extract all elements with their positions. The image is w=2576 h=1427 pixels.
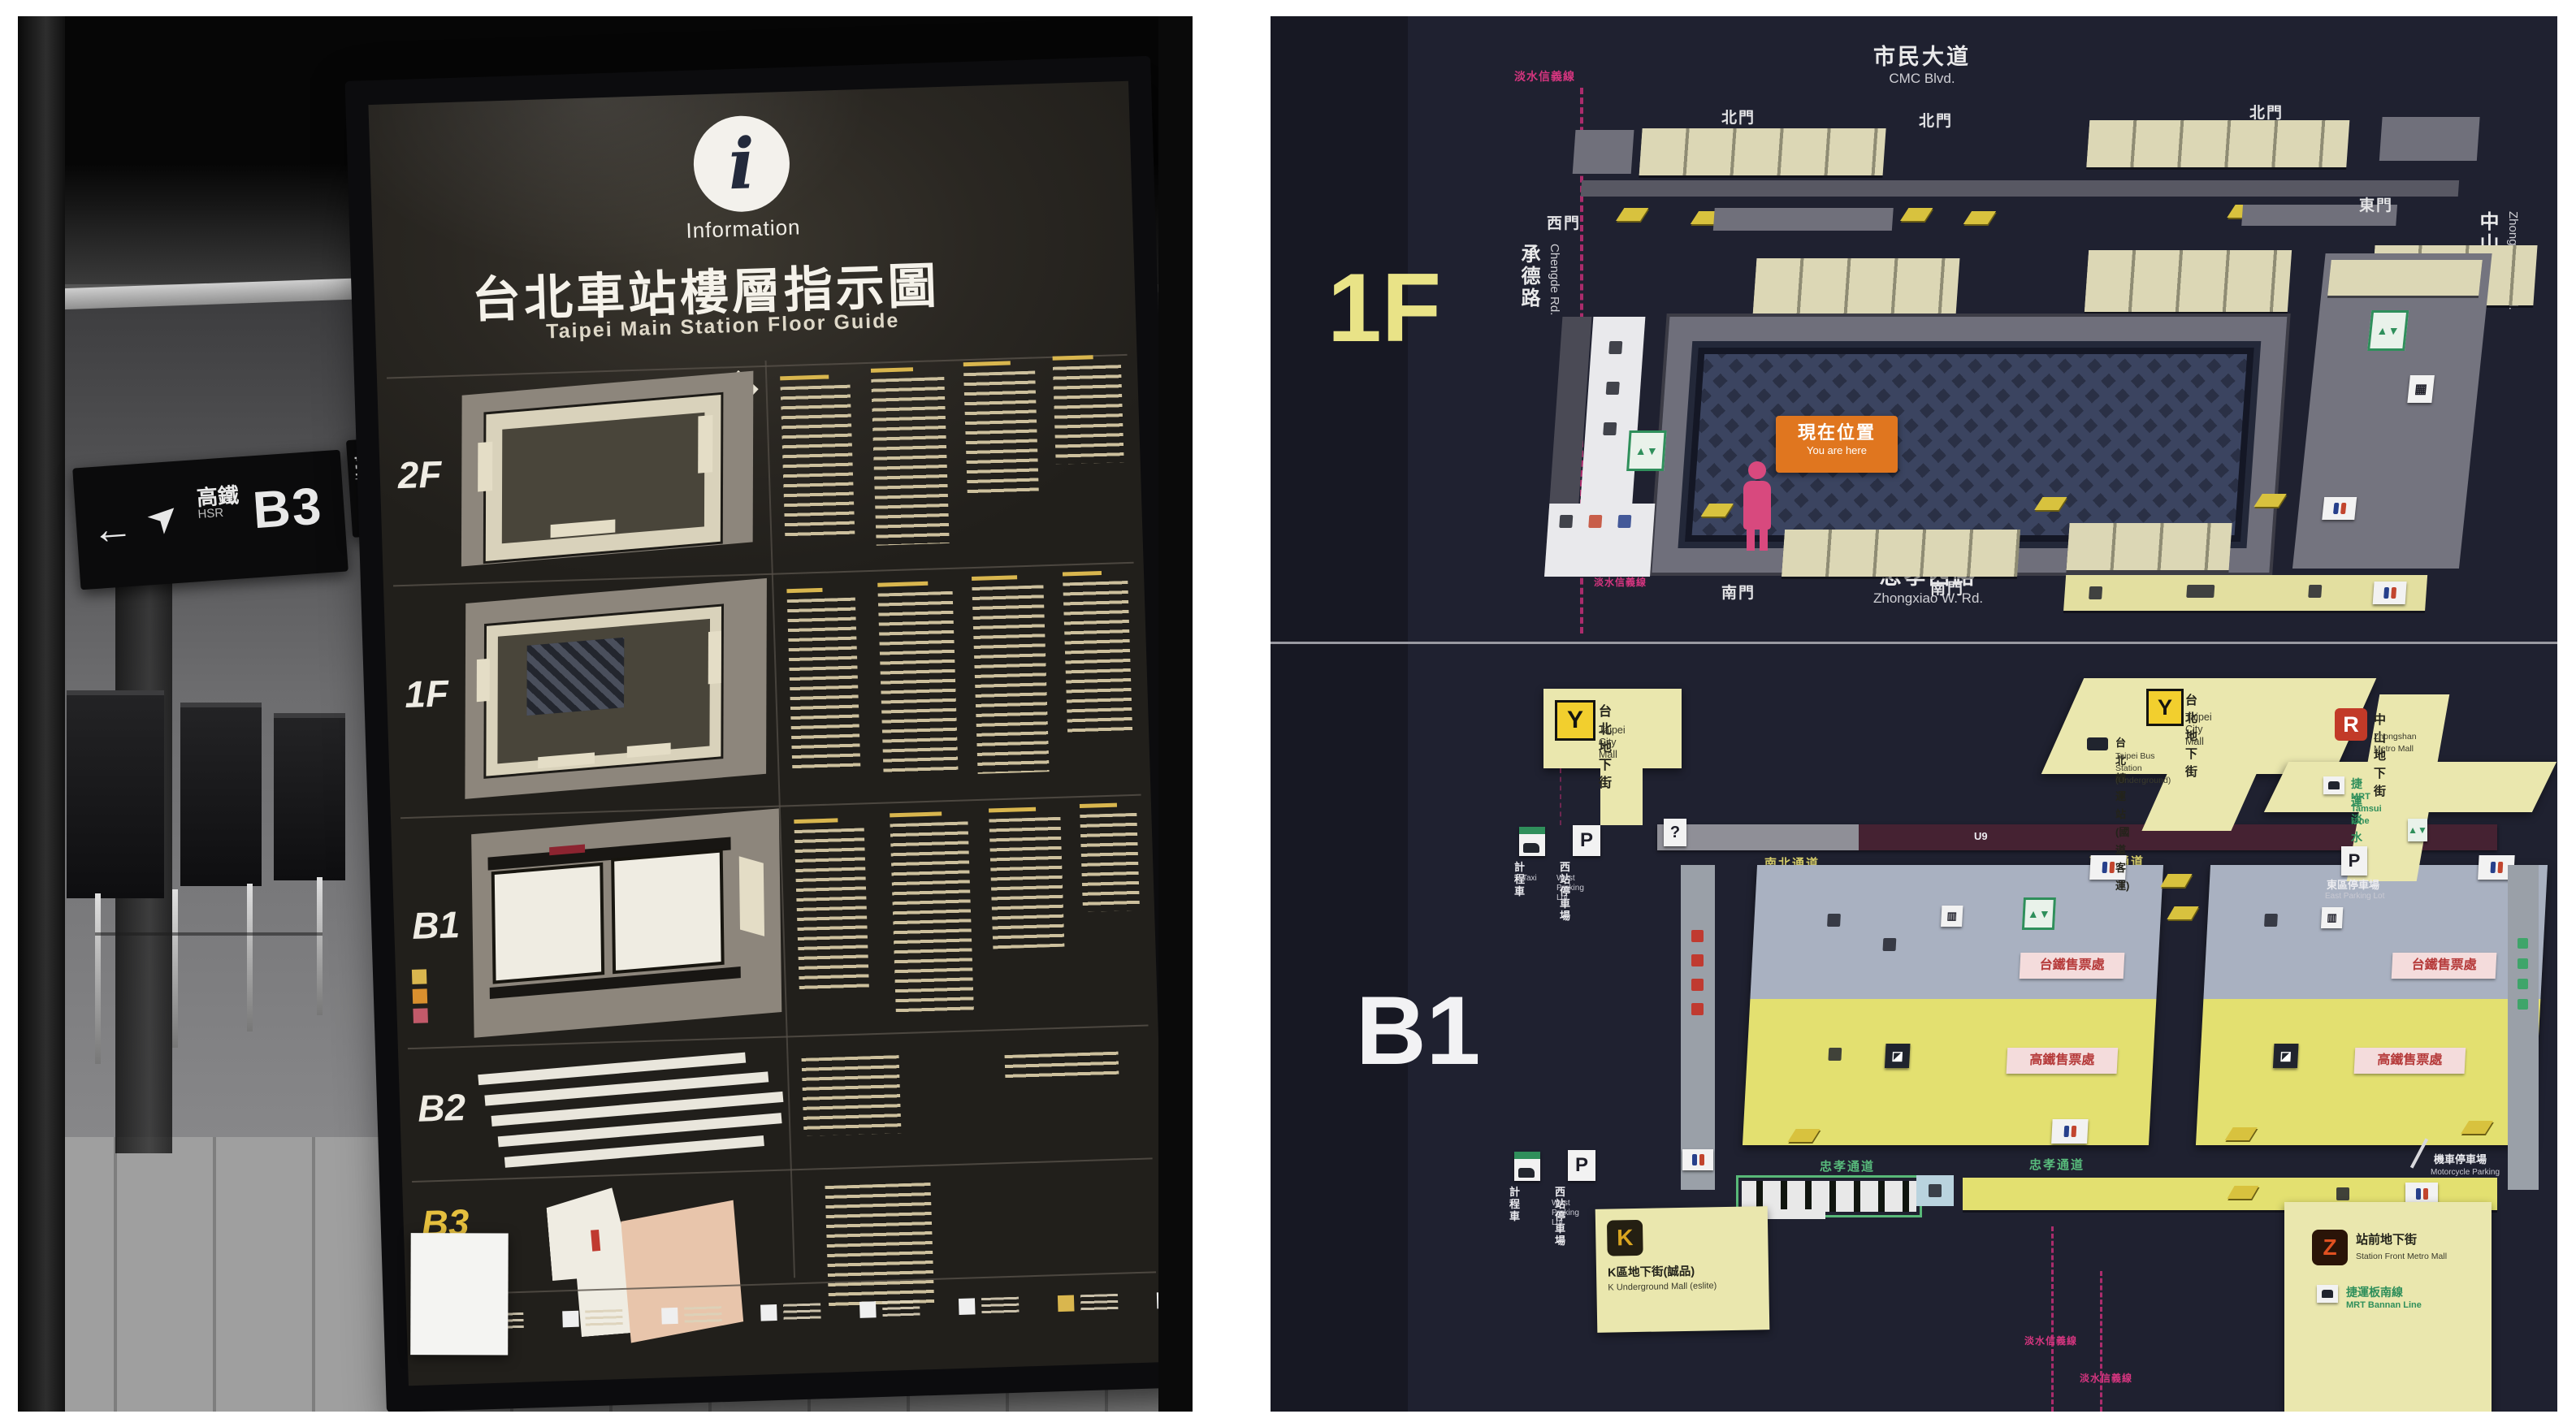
ticket-machine [274, 713, 345, 880]
parking-east-en: East Parking Lot [2325, 892, 2384, 902]
bus-bay-block [1639, 128, 1886, 175]
floor-b1-label: B1 [1356, 975, 1480, 1087]
floor-1f-label: 1F [1327, 252, 1441, 364]
east-hall: ▲▼ ▦ [2292, 253, 2492, 569]
z-line-zh: 捷運板南線 [2346, 1283, 2403, 1301]
legend-item [959, 1297, 1020, 1315]
floor-label-1f: 1F [404, 671, 448, 716]
bus-bay-block [2086, 120, 2349, 167]
north-structure [2379, 117, 2480, 161]
escalator-icon [2461, 1121, 2493, 1134]
escalator-icon [2160, 874, 2192, 887]
train-icon [2323, 776, 2344, 794]
gate-east-label: 東門 [2359, 193, 2393, 215]
west-vertical-corridor [1681, 865, 1715, 1190]
gate-south-label: 南門 [1930, 577, 1964, 599]
floor-label-b1: B1 [411, 902, 460, 948]
k-mall-logo: K [1617, 1225, 1634, 1251]
floor-label-b2: B2 [417, 1085, 465, 1131]
legend-item [1058, 1294, 1119, 1312]
floor-guide-board: i Information 台北車站樓層指示圖 Taipei Main Stat… [344, 56, 1192, 1412]
ceiling-direction-sign: ← ➤ 高鐵 HSR B3 [72, 450, 349, 590]
parking-icon: P [1573, 825, 1600, 856]
r-en: Zhongshan Metro Mall [2374, 731, 2417, 755]
callout-station-front-metro-mall: Z 站前地下街 Station Front Metro Mall 捷運板南線 M… [2284, 1202, 2492, 1412]
queue-stanchion [317, 877, 323, 1015]
escalator-icon [2167, 906, 2198, 919]
elevator-icon: ▲▼ [2367, 310, 2409, 351]
parking-west-en: West Parking Lot [1556, 874, 1584, 903]
elevator-icon: ▲▼ [1626, 430, 1666, 471]
train-icon: ➤ [136, 490, 189, 543]
y-mall-logo: Y [1555, 700, 1595, 741]
ticket-icon: ◪ [2273, 1044, 2299, 1068]
z-zh: 站前地下街 [2356, 1231, 2417, 1249]
z-mall-logo: Z [2323, 1235, 2336, 1261]
hsr-label-en: HSR [197, 505, 240, 521]
ticket-icon: ▥ [2321, 907, 2343, 928]
legend-item [661, 1306, 722, 1324]
elevator-icon: ▲▼ [2408, 819, 2427, 841]
gate-west-label: 西門 [1547, 211, 1581, 233]
floor-label-2f: 2F [397, 452, 442, 498]
parking-icon: P [1568, 1150, 1595, 1181]
tra-ticket-office-label: 台鐵售票處 [2392, 953, 2497, 979]
escalator-icon [1616, 208, 1648, 221]
passage-south-label: 忠孝通道 [2029, 1156, 2085, 1173]
ticket-machine [67, 690, 164, 898]
photo-edge-shadow [1158, 16, 1193, 1412]
southwest-service [1544, 504, 1655, 577]
east-vertical-corridor [2508, 865, 2539, 1190]
notice-card [410, 1233, 509, 1355]
ticket-machine [180, 703, 262, 886]
south-block-row [1782, 530, 2020, 577]
bus-station-en: Taipei Bus Station (Underground) [2115, 750, 2171, 787]
map-2f [461, 371, 753, 567]
queue-belt [95, 932, 323, 936]
mrt-line-label: 淡水信義線 [2080, 1371, 2132, 1385]
r-line-en: MRT Tamsui Line [2351, 791, 2382, 828]
escalator-icon [2225, 1127, 2258, 1140]
toilet-icon [1682, 1149, 1713, 1170]
exit-u9-label: U9 [1974, 830, 1988, 842]
you-are-here-zh: 現在位置 [1776, 421, 1898, 445]
you-are-here-callout: 現在位置 You are here [1776, 416, 1898, 473]
hsr-label-zh: 高鐵 [196, 485, 240, 509]
k-en: K Underground Mall (eslite) [1608, 1280, 1717, 1294]
map-1f [465, 578, 767, 799]
escalator-icon [1900, 208, 1933, 221]
left-photo-station-scene: ← ➤ 高鐵 HSR B3 臺鐵 TRA i Information 台北車站樓… [18, 16, 1193, 1412]
ticket-icon: ▥ [1941, 906, 1963, 927]
k-zh: K區地下街(誠品) [1608, 1263, 1695, 1282]
section-divider [1271, 642, 2557, 644]
parking-icon: P [2341, 846, 2367, 876]
directory-b3 [825, 1183, 935, 1308]
tra-ticket-office-label: 台鐵售票處 [2020, 953, 2125, 979]
y-mall-logo: Y [2146, 689, 2184, 726]
left-arrow-icon: ← [89, 504, 135, 555]
r-mall-logo: R [2335, 708, 2367, 741]
service-icon: ▦ [2407, 375, 2435, 403]
gate-south-label: 南門 [1721, 581, 1756, 603]
taxi-label-en: Taxi [1522, 874, 1537, 884]
south-block-row [2067, 523, 2232, 570]
ticket-machine-row [2085, 250, 2292, 312]
elevator-icon: ▲▼ [2022, 897, 2056, 930]
blue-service-box [1916, 1175, 1954, 1206]
mrt-line-dashed [2100, 1271, 2102, 1412]
map-b1 [471, 808, 781, 1037]
passage-south-label: 忠孝通道 [1820, 1157, 1875, 1174]
legend-item [859, 1300, 920, 1318]
legend-item [562, 1309, 623, 1327]
queue-stanchion [95, 893, 101, 1064]
pillar [18, 16, 65, 1412]
hsr-ticket-office-label: 高鐵售票處 [2007, 1048, 2119, 1074]
taxi-icon [1519, 827, 1545, 856]
gate-north-label: 北門 [1919, 109, 1953, 131]
r-zh: 中山地下街 [2374, 711, 2386, 801]
you-are-here-person-icon [1738, 461, 1776, 551]
gate-north-label: 北門 [2249, 101, 2284, 123]
right-photo-map-detail: 1F 市民大道 CMC Blvd. 承德路 Chengde Rd. 中山北路 Z… [1271, 16, 2557, 1412]
north-wall [1581, 180, 2459, 197]
info-icon: ? [1664, 819, 1686, 846]
bus-icon [2087, 737, 2108, 750]
information-label: Information [686, 214, 801, 243]
z-line-en: MRT Bannan Line [2346, 1299, 2422, 1312]
y-east-en: Taipei City Mall [2185, 711, 2212, 748]
map-1f-blocks: ? ▲▼ ▲▼ ▦ [1514, 49, 2546, 617]
mrt-line-dashed [2051, 1226, 2054, 1412]
b1-line-chips [412, 964, 428, 1028]
b1-east-hall: ▥ 台鐵售票處 ◪ 高鐵售票處 [2196, 865, 2548, 1145]
toilet-icon [2322, 497, 2357, 520]
floor-b3-label: B3 [251, 475, 325, 540]
escalator-icon [1788, 1129, 1821, 1142]
taxi-label-zh: 計程車 [1509, 1186, 1520, 1222]
taxi-icon [1514, 1152, 1540, 1181]
gate-north-label: 北門 [1721, 106, 1756, 128]
mrt-line-label: 淡水信義線 [2024, 1334, 2077, 1347]
escalator-icon [1963, 211, 1996, 224]
queue-stanchion [172, 889, 178, 1048]
train-icon [2317, 1285, 2338, 1303]
parking-east-zh: 東區停車場 [2327, 879, 2379, 891]
north-structure [1573, 130, 1634, 174]
queue-stanchion [247, 884, 253, 1031]
toilet-icon [2373, 582, 2407, 604]
mrt-line-dashed [1560, 768, 1561, 825]
taxi-bay-strip [2063, 575, 2427, 611]
z-en: Station Front Metro Mall [2356, 1251, 2447, 1263]
parking-west-en: West Parking Lot [1552, 1199, 1579, 1228]
escalator-icon [2227, 1186, 2258, 1199]
moto-parking-en: Motorcycle Parking [2431, 1168, 2500, 1178]
callout-k-underground-mall: K K區地下街(誠品) K Underground Mall (eslite) [1595, 1206, 1770, 1333]
legend-item [760, 1303, 821, 1321]
moto-parking-zh: 機車停車場 [2434, 1153, 2487, 1165]
ticket-machine-row [1752, 258, 1959, 320]
toilet-icon [2051, 1119, 2089, 1144]
hsr-ticket-office-label: 高鐵售票處 [2354, 1048, 2466, 1074]
y-west-en: Taipei City Mall [1599, 724, 1626, 761]
you-are-here-en: You are here [1776, 445, 1898, 456]
floor-guide-panel: i Information 台北車站樓層指示圖 Taipei Main Stat… [368, 81, 1168, 1386]
ticket-icon: ◪ [1885, 1044, 1911, 1068]
canopy [1713, 208, 1894, 231]
b1-west-hall: ▥ ▲▼ 台鐵售票處 ◪ 高鐵售票處 [1743, 865, 2163, 1145]
